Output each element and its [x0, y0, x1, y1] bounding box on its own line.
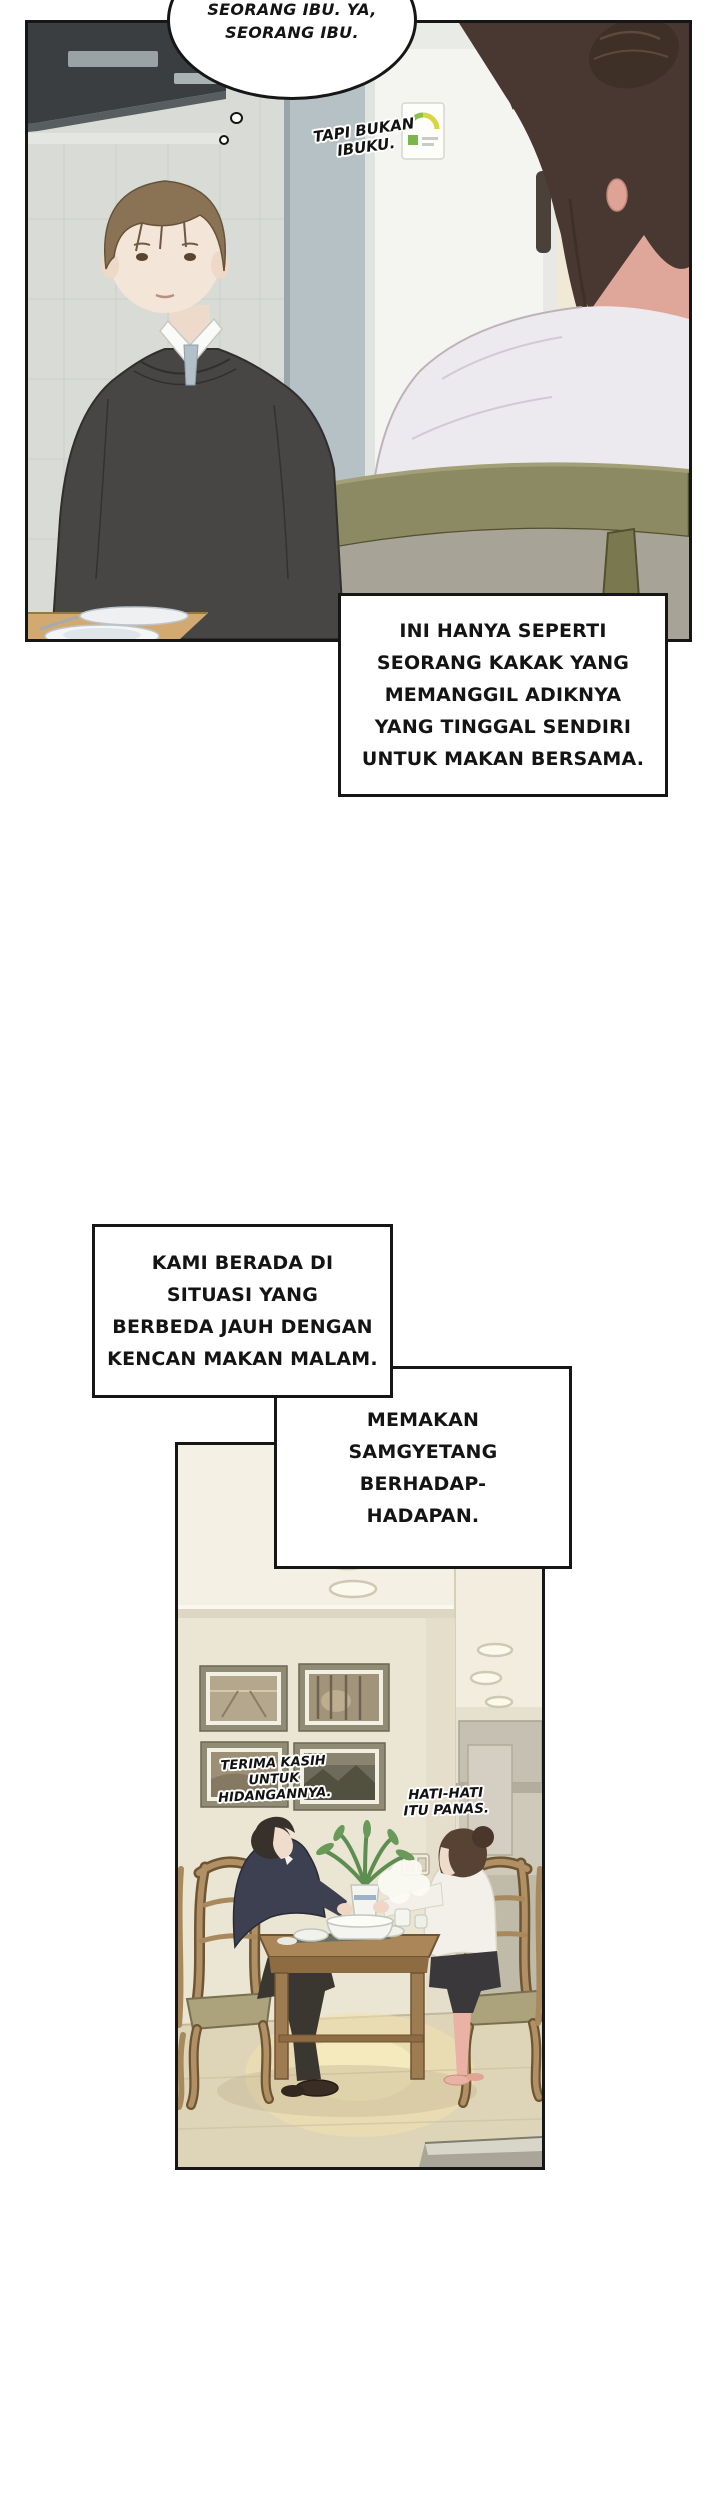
narration-line: KENCAN MAKAN MALAM. — [95, 1343, 390, 1375]
narration-line: INI HANYA SEPERTI — [341, 615, 665, 647]
panel-kitchen — [25, 20, 692, 642]
frame-forest — [299, 1664, 389, 1731]
kitchen-scene-illustration — [28, 23, 689, 639]
narration-line: SAMGYETANG — [277, 1436, 569, 1468]
narration-line: SEORANG KAKAK YANG — [341, 647, 665, 679]
narration-line: BERHADAP- — [277, 1468, 569, 1500]
narration-box-ini: INI HANYA SEPERTI SEORANG KAKAK YANG MEM… — [338, 593, 668, 797]
speech-hati-hati: HATI-HATI ITU PANAS. — [395, 1784, 496, 1819]
narration-line: KAMI BERADA DI — [95, 1247, 390, 1279]
thought-trail-bubble — [219, 135, 229, 145]
narration-text: MEMAKAN SAMGYETANG BERHADAP- HADAPAN. — [277, 1404, 569, 1532]
narration-line: HADAPAN. — [277, 1500, 569, 1532]
gray-step — [419, 2137, 542, 2167]
narration-text: INI HANYA SEPERTI SEORANG KAKAK YANG MEM… — [341, 615, 665, 775]
narration-line: YANG TINGGAL SENDIRI — [341, 711, 665, 743]
narration-line: SITUASI YANG — [95, 1279, 390, 1311]
comic-page: SEORANG IBU. YA, SEORANG IBU. TAPI BUKAN… — [0, 0, 720, 2500]
narration-line: MEMANGGIL ADIKNYA — [341, 679, 665, 711]
narration-line: UNTUK MAKAN BERSAMA. — [341, 743, 665, 775]
narration-line: MEMAKAN — [277, 1404, 569, 1436]
speech-terima-kasih: TERIMA KASIH UNTUK HIDANGANNYA. — [203, 1752, 345, 1807]
thought-trail-bubble — [230, 112, 243, 124]
thought-line: SEORANG IBU. — [207, 0, 341, 19]
narration-text: KAMI BERADA DI SITUASI YANG BERBEDA JAUH… — [95, 1247, 390, 1375]
narration-line: BERBEDA JAUH DENGAN — [95, 1311, 390, 1343]
narration-box-kami: KAMI BERADA DI SITUASI YANG BERBEDA JAUH… — [92, 1224, 393, 1398]
thought-bubble-text: SEORANG IBU. YA, SEORANG IBU. — [170, 0, 414, 44]
frame-railway — [200, 1666, 287, 1731]
